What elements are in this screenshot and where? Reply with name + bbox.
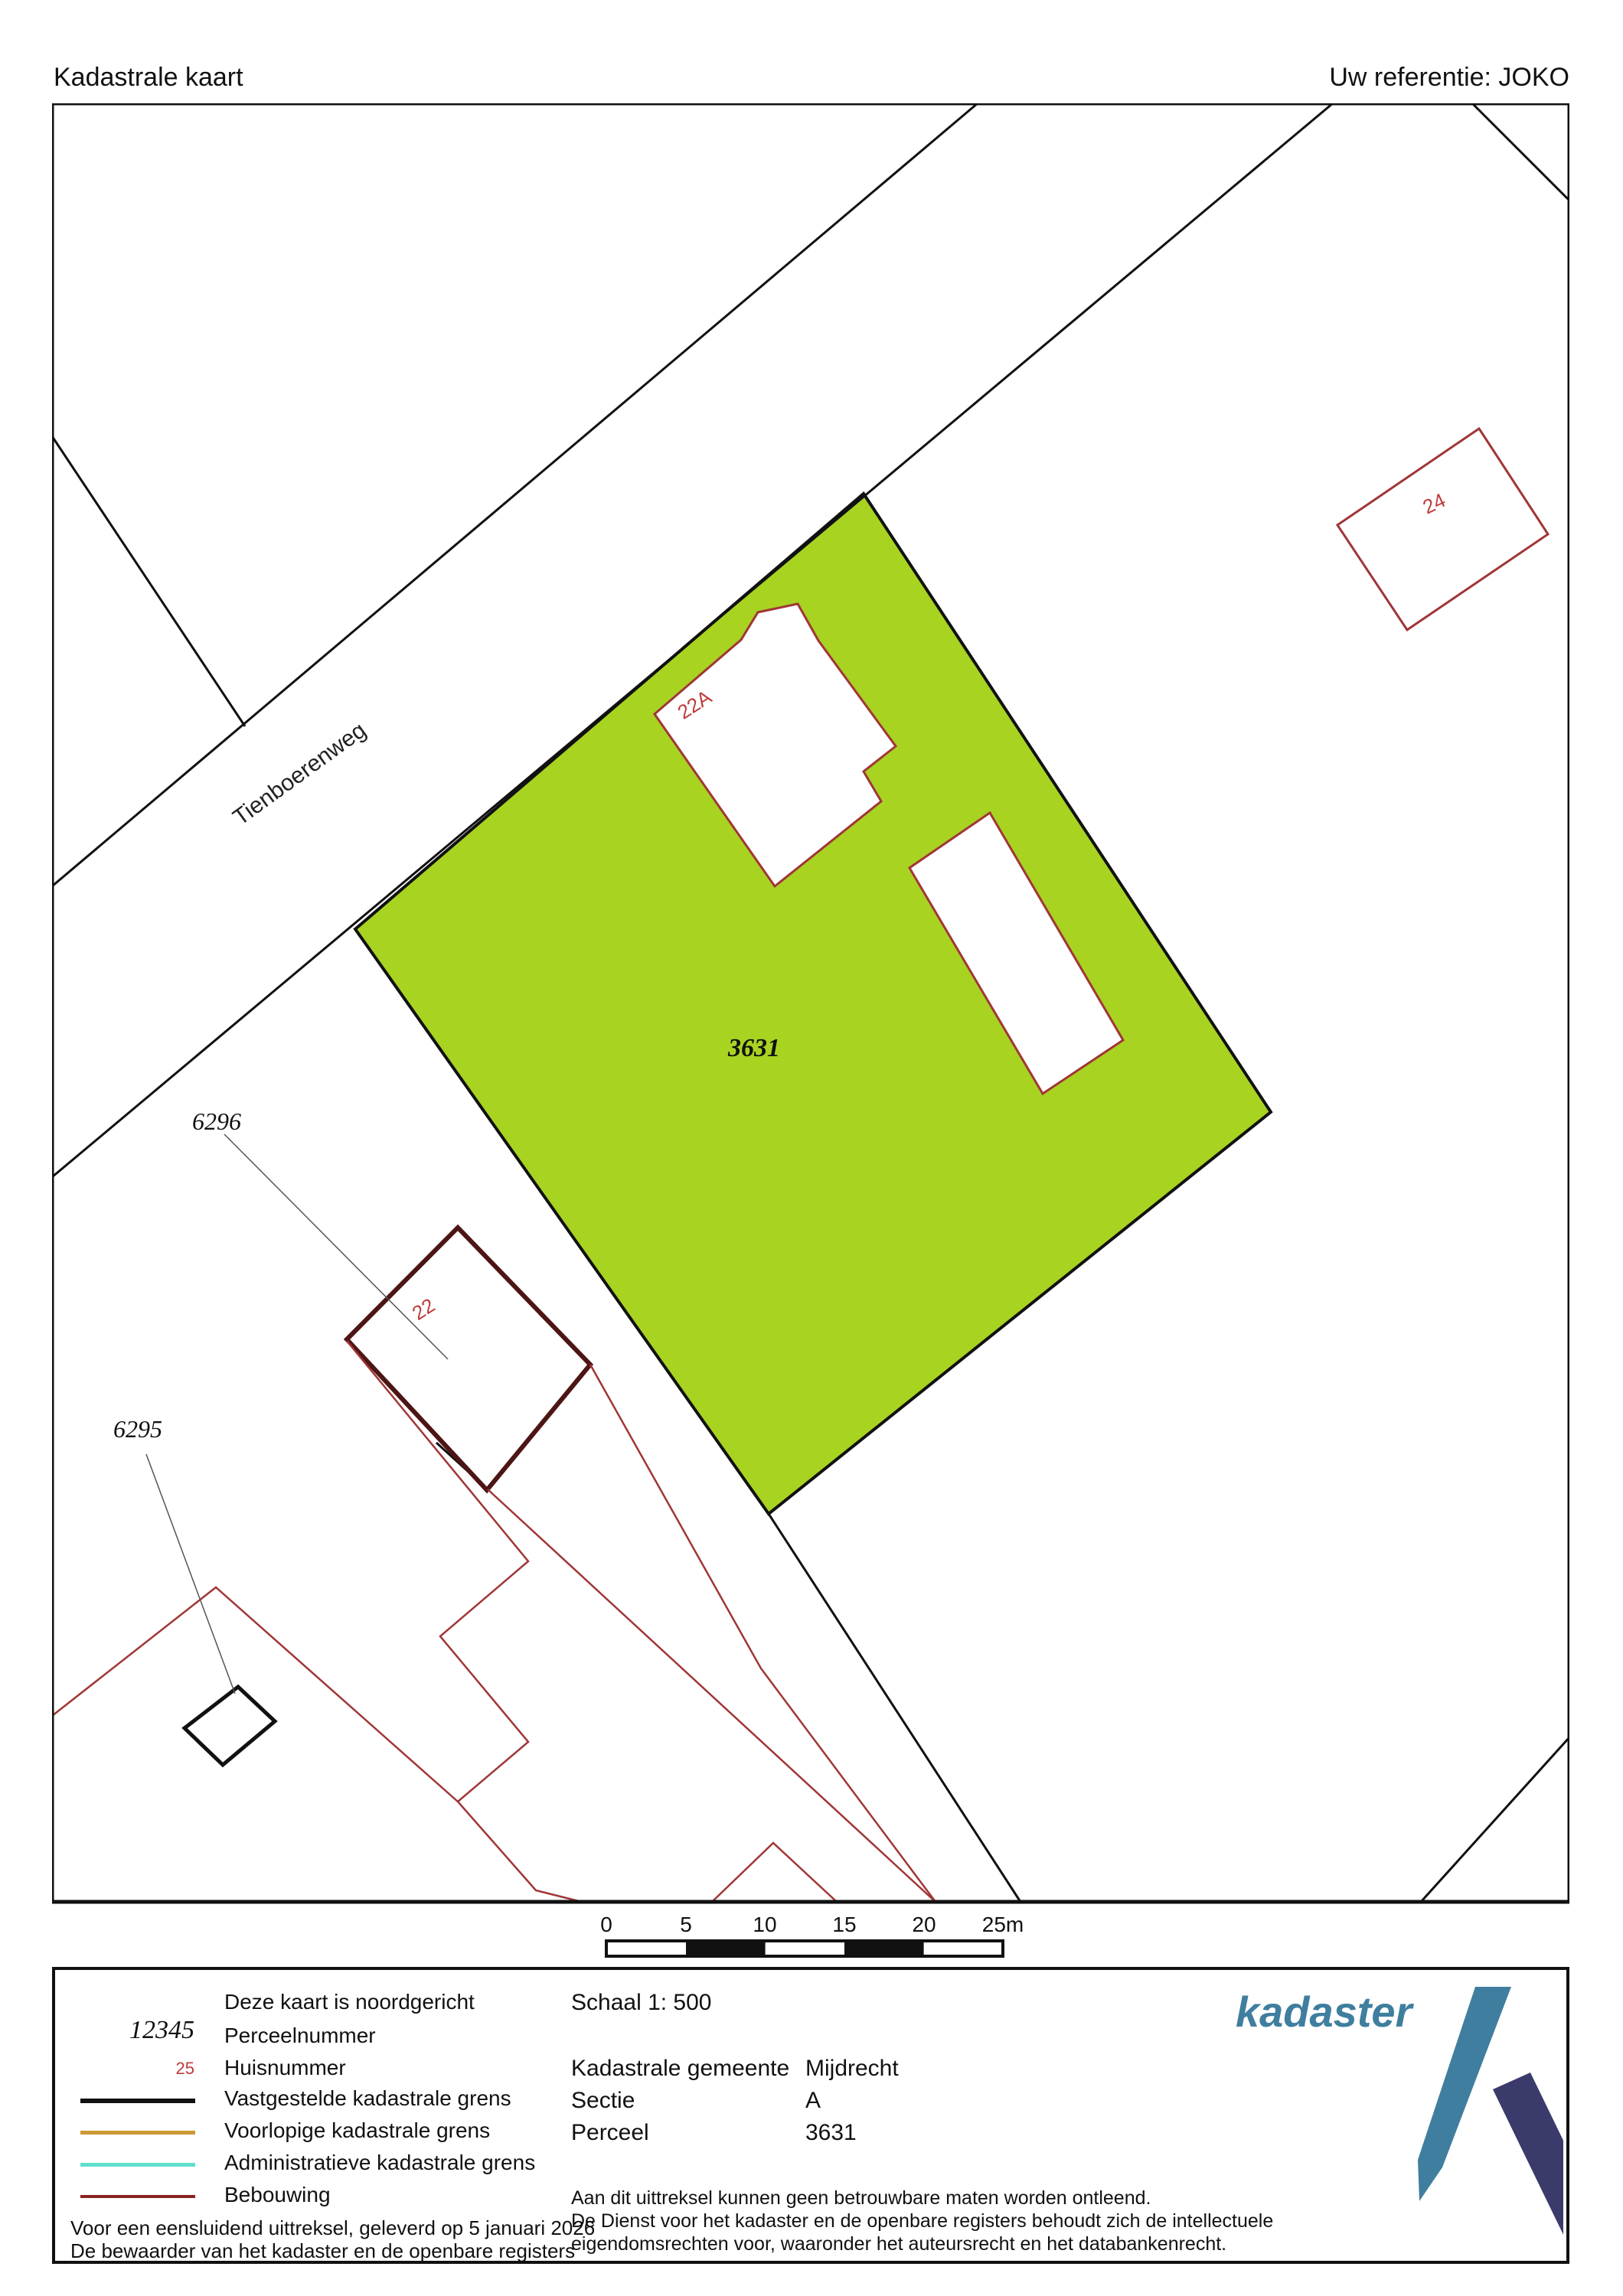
perceel-value: 3631 (805, 2120, 857, 2146)
disclaimer-line2: De Dienst voor het kadaster en de openba… (571, 2210, 1273, 2232)
scale-tick-0: 0 (600, 1913, 612, 1936)
leader-6295 (146, 1454, 235, 1694)
gemeente-label: Kadastrale gemeente (571, 2056, 789, 2082)
parcel-6296-label[interactable]: 6296 (192, 1107, 241, 1135)
gemeente-value: Mijdrecht (805, 2056, 899, 2082)
scale-bar-seg-black2 (844, 1941, 924, 1956)
scale-tick-10: 10 (753, 1913, 776, 1936)
schaal-text: Schaal 1: 500 (571, 1990, 711, 2016)
disclaimer-line1: Aan dit uittreksel kunnen geen betrouwba… (571, 2187, 1151, 2210)
sectie-value: A (805, 2088, 821, 2114)
bebouwing-label: Bebouwing (224, 2183, 331, 2207)
bebouwing-swatch (80, 2195, 195, 2198)
perceelnummer-label: Perceelnummer (224, 2024, 376, 2048)
west-branch-boundary (52, 436, 245, 726)
cadastral-map[interactable]: Tienboerenweg 3631 6296 6295 22A 22 24 0… (52, 103, 1569, 1959)
parcel-6295-label[interactable]: 6295 (113, 1415, 162, 1443)
scale-bar: 0 5 10 15 20 25m (600, 1913, 1024, 1956)
complex-west-wing (52, 1587, 458, 1802)
building-24[interactable] (1337, 429, 1548, 630)
kadaster-logo: kadaster (1226, 1976, 1563, 2259)
scale-bar-outline (606, 1941, 1003, 1956)
scale-tick-20: 20 (912, 1913, 936, 1936)
leader-6296 (224, 1134, 448, 1359)
disclaimer-line3: eigendomsrechten voor, waaronder het aut… (571, 2233, 1226, 2255)
huisnummer-symbol: 25 (78, 2059, 194, 2079)
reference-text: Uw referentie: JOKO (1329, 63, 1569, 93)
leader-lines (146, 1134, 448, 1694)
kadaster-logo-mark-navy (1493, 2073, 1563, 2239)
scale-tick-15: 15 (832, 1913, 856, 1936)
kadastrale-kaart-page: Kadastrale kaart Uw referentie: JOKO (0, 0, 1623, 2296)
page-title: Kadastrale kaart (54, 63, 243, 93)
kadaster-logo-text: kadaster (1236, 1988, 1415, 2036)
topright-boundary (1472, 103, 1569, 201)
parcel-3631-label[interactable]: 3631 (727, 1034, 780, 1062)
north-note: Deze kaart is noordgericht (224, 1990, 475, 2014)
complex-ne-outline (488, 1489, 936, 1902)
complex-bottom-notch (712, 1843, 837, 1902)
footer-note-line2: De bewaarder van het kadaster en de open… (70, 2239, 575, 2263)
voorlopige-grens-swatch (80, 2131, 195, 2135)
building-6295-shed[interactable] (185, 1687, 275, 1765)
footer-note-line1: Voor een eensluidend uittreksel, gelever… (70, 2216, 595, 2240)
bottomright-boundary (1421, 1737, 1569, 1902)
administratieve-grens-swatch (80, 2163, 195, 2167)
perceel-label: Perceel (571, 2120, 649, 2146)
vastgestelde-grens-swatch (80, 2099, 195, 2103)
vastgestelde-grens-label: Vastgestelde kadastrale grens (224, 2086, 511, 2111)
road-name-label: Tienboerenweg (229, 718, 371, 831)
building-22[interactable] (347, 1228, 590, 1490)
voorlopige-grens-label: Voorlopige kadastrale grens (224, 2118, 490, 2143)
scale-bar-seg-black1 (686, 1941, 766, 1956)
scale-tick-25m: 25m (982, 1913, 1024, 1936)
huisnummer-label: Huisnummer (224, 2056, 346, 2080)
perceelnummer-symbol: 12345 (78, 2016, 194, 2045)
administratieve-grens-label: Administratieve kadastrale grens (224, 2151, 535, 2175)
sectie-label: Sectie (571, 2088, 635, 2114)
scale-tick-5: 5 (680, 1913, 692, 1936)
south-boundary-extension (769, 1514, 1020, 1902)
footer-box: Deze kaart is noordgericht 12345 Perceel… (52, 1967, 1569, 2264)
